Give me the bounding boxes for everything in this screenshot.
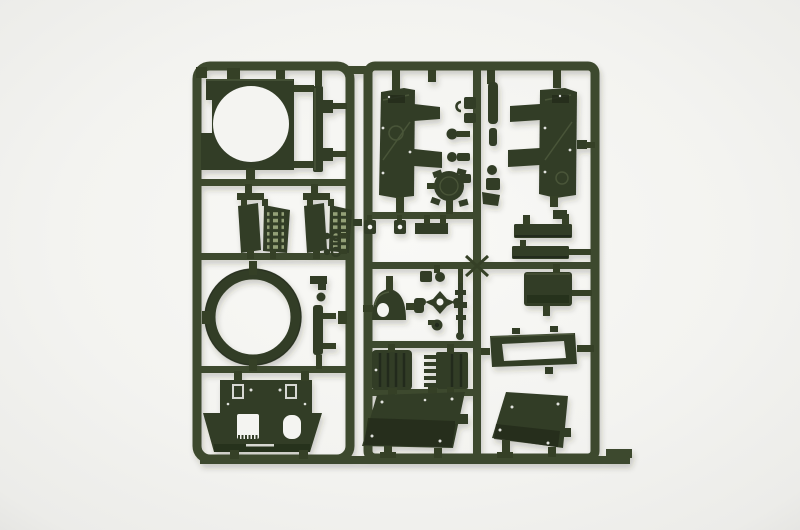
gate-stub	[572, 290, 592, 296]
panel-dark-patch	[388, 95, 405, 103]
gate-stub	[328, 199, 334, 206]
gate-stub	[392, 70, 400, 90]
gate-stub	[230, 450, 239, 459]
gate-stub	[447, 344, 454, 353]
gate-stub	[316, 355, 322, 369]
gate-stub	[363, 305, 373, 312]
gate-stub	[481, 348, 490, 355]
gate-stub	[315, 70, 322, 86]
gate-stub	[396, 197, 404, 213]
gate-stub	[569, 249, 591, 255]
bottom-rail-end-tab	[606, 449, 632, 458]
frame-nub	[512, 328, 520, 334]
gate-stub	[428, 387, 437, 393]
small-fitting	[553, 210, 567, 219]
fender-wing	[414, 149, 442, 168]
gate-stub	[386, 276, 393, 291]
gate-stub	[577, 345, 594, 352]
fender-wing	[508, 148, 540, 167]
gate-stub	[380, 452, 396, 458]
frame-nub	[550, 326, 558, 332]
gate-stub	[313, 250, 320, 259]
gate-stub	[434, 265, 440, 273]
gate-stub	[246, 168, 255, 180]
gate-stub	[333, 103, 347, 109]
gate-stub	[237, 193, 264, 200]
gate-stub	[202, 311, 210, 324]
gate-stub	[428, 320, 435, 325]
gate-stub	[553, 70, 561, 88]
gate-stub	[294, 161, 314, 168]
gate-stub	[234, 371, 242, 381]
gate-stub	[227, 68, 240, 80]
gate-stub	[247, 250, 254, 259]
gate-stub	[458, 269, 463, 283]
bottom-rail	[200, 456, 630, 464]
plate-shade	[364, 418, 456, 447]
gate-stub	[434, 448, 442, 458]
gate-stub	[249, 359, 257, 371]
tow-line	[246, 444, 274, 447]
hatch-opening-round	[283, 415, 301, 439]
gate-stub	[553, 264, 560, 273]
gate-stub	[388, 344, 395, 352]
gate-stub	[301, 371, 309, 381]
fender-wing	[414, 104, 440, 121]
small-plank	[415, 223, 448, 234]
gate-stub	[299, 450, 308, 459]
fender-wing	[510, 104, 540, 122]
gate-stub	[323, 343, 336, 349]
plank-lug	[323, 100, 333, 113]
rod-part	[488, 82, 498, 124]
gate-stub	[388, 388, 397, 394]
gate-stub	[270, 250, 276, 259]
gate-stub	[548, 447, 556, 457]
gate-stub	[586, 142, 595, 148]
plate-notch	[455, 414, 468, 424]
gate-stub	[446, 200, 453, 214]
frame-nub	[545, 367, 553, 374]
corner-tab	[196, 67, 207, 78]
gate-stub	[294, 85, 314, 92]
gate-stub	[550, 196, 558, 207]
gate-stub	[276, 70, 285, 80]
part-upper-hull-plate	[203, 371, 322, 459]
top-rail-stub	[347, 66, 372, 74]
gate-stub	[497, 452, 513, 458]
gate-stub	[523, 215, 530, 225]
turret-ring-opening	[213, 86, 289, 162]
cupola-port-hole	[377, 303, 389, 317]
plate-notch	[560, 428, 571, 437]
gate-stub	[323, 313, 336, 319]
panel-side-nub	[577, 140, 587, 149]
plank-lug	[323, 148, 333, 161]
gate-stub	[262, 199, 268, 206]
gate-stub	[307, 199, 313, 206]
gate-stub	[241, 199, 247, 206]
grille-slots	[267, 212, 284, 249]
kit-sprue-photo	[0, 0, 800, 530]
gate-stub	[333, 151, 347, 157]
gate-stub	[338, 311, 347, 324]
gate-stub	[249, 261, 257, 275]
gate-stub	[543, 306, 550, 316]
sprue-photo-canvas	[0, 0, 800, 530]
gate-stub	[427, 183, 436, 189]
gate-stub	[303, 193, 330, 200]
gate-stub	[520, 240, 526, 247]
grille-slots	[333, 212, 349, 249]
